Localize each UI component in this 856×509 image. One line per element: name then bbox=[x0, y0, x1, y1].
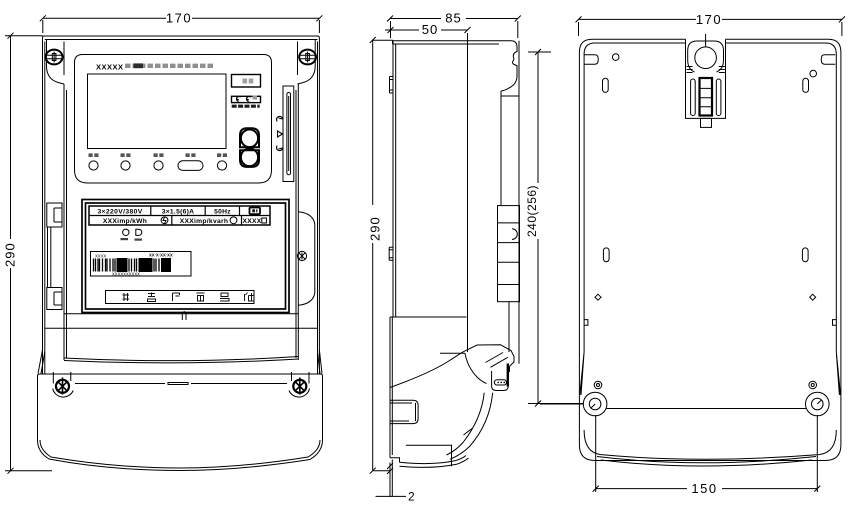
svg-text:XXXXX: XXXXX bbox=[96, 63, 124, 72]
svg-text:50Hz: 50Hz bbox=[214, 209, 231, 216]
svg-text:290: 290 bbox=[3, 242, 18, 267]
svg-text:50: 50 bbox=[422, 22, 438, 37]
svg-text:170: 170 bbox=[696, 12, 722, 27]
svg-text:150: 150 bbox=[691, 481, 717, 496]
svg-text:290: 290 bbox=[368, 216, 383, 241]
svg-text:3×1.5(6)A: 3×1.5(6)A bbox=[162, 209, 195, 216]
svg-text:240(256): 240(256) bbox=[525, 185, 539, 237]
svg-text:XXXXXXXXXX: XXXXXXXXXX bbox=[112, 272, 140, 277]
svg-text:XXXX: XXXX bbox=[95, 254, 106, 259]
svg-text:170: 170 bbox=[166, 11, 192, 26]
svg-text:85: 85 bbox=[445, 11, 461, 26]
svg-text:XXXimp/kWh: XXXimp/kWh bbox=[103, 218, 147, 225]
svg-text:2: 2 bbox=[408, 490, 415, 504]
svg-text:XXXX: XXXX bbox=[242, 218, 261, 225]
svg-text:XXXimp/kvarh: XXXimp/kvarh bbox=[180, 218, 229, 225]
svg-text:3×220V/380V: 3×220V/380V bbox=[97, 209, 142, 216]
svg-text:XX·X·XX·XX: XX·X·XX·XX bbox=[149, 253, 173, 258]
